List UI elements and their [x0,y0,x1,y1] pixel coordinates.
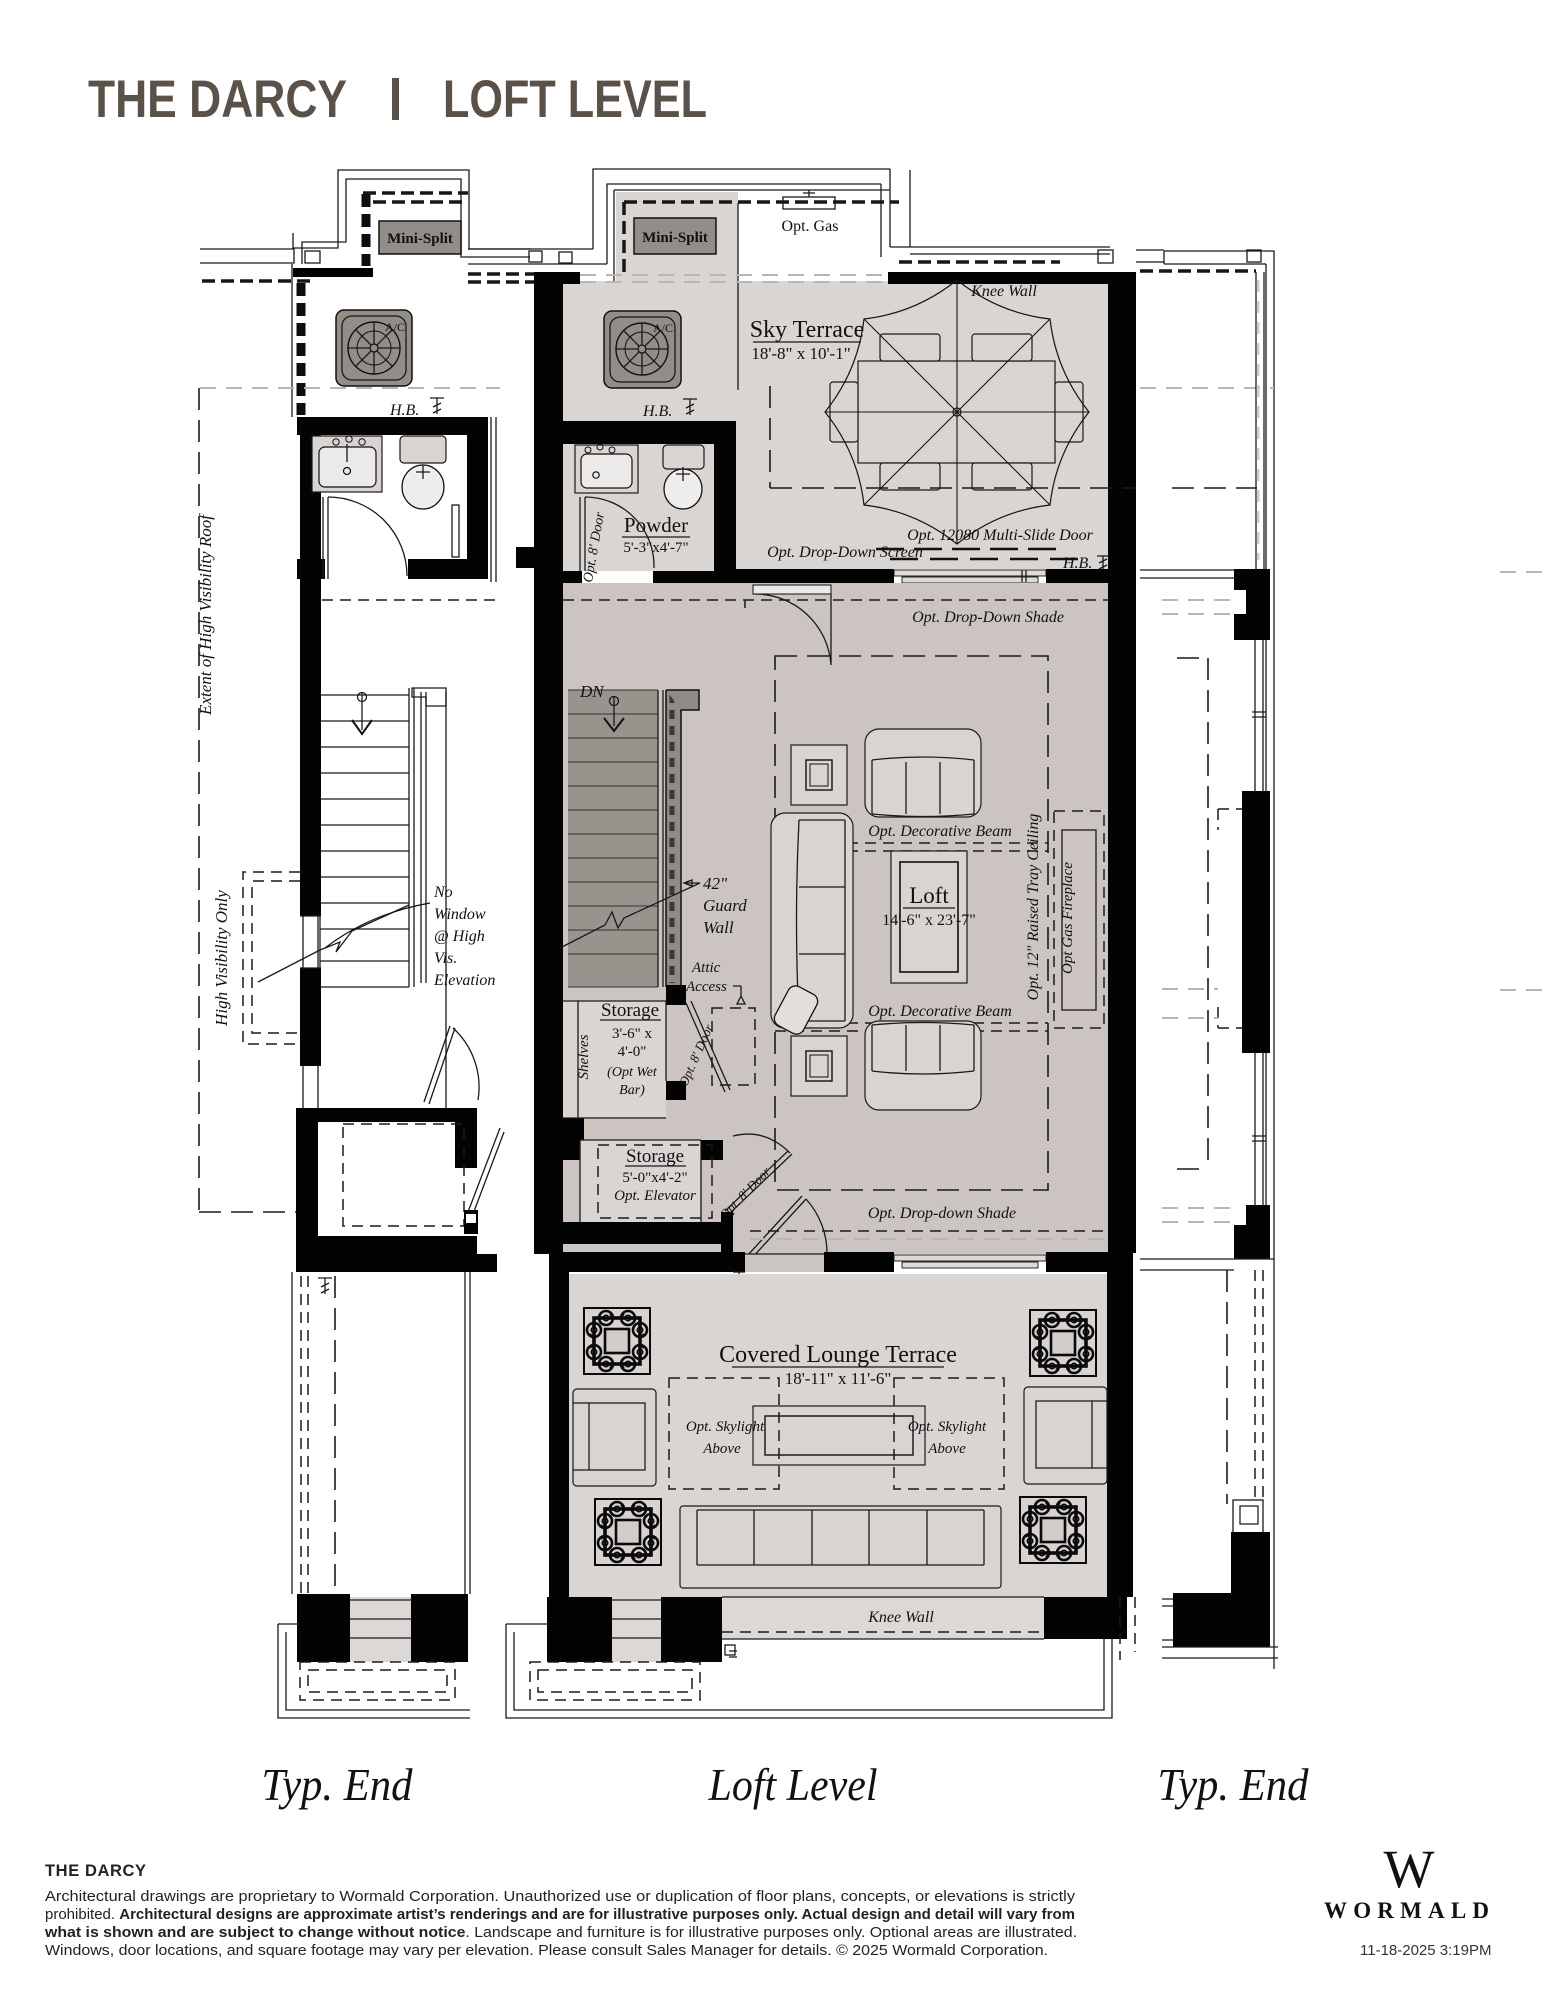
svg-text:4'-0": 4'-0" [618,1044,647,1060]
svg-text:WORMALD: WORMALD [1324,1898,1500,1923]
svg-text:Opt. Decorative Beam: Opt. Decorative Beam [868,823,1012,840]
svg-text:Window: Window [434,906,486,923]
svg-text:Elevation: Elevation [433,972,495,989]
svg-text:3'-6" x: 3'-6" x [612,1026,653,1042]
svg-text:Loft Level: Loft Level [708,1759,878,1810]
svg-text:Opt. Gas: Opt. Gas [782,218,839,235]
svg-text:Opt. Elevator: Opt. Elevator [614,1188,696,1204]
svg-text:Opt. Drop-Down Shade: Opt. Drop-Down Shade [912,609,1064,626]
svg-text:No: No [433,884,453,901]
svg-text:(Opt Wet: (Opt Wet [607,1065,658,1080]
svg-text:11-18-2025 3:19PM: 11-18-2025 3:19PM [1360,1942,1491,1959]
svg-text:High Visibility Only: High Visibility Only [212,890,231,1027]
svg-text:5'-0"x4'-2": 5'-0"x4'-2" [622,1170,687,1186]
svg-text:A/C: A/C [385,320,405,334]
svg-text:Attic: Attic [691,960,721,976]
svg-text:@ High: @ High [434,928,485,945]
svg-text:Powder: Powder [624,513,688,537]
svg-text:Bar): Bar) [619,1083,645,1098]
svg-text:Knee Wall: Knee Wall [867,1609,934,1626]
svg-text:LOFT LEVEL: LOFT LEVEL [443,70,707,129]
svg-text:Opt. Decorative Beam: Opt. Decorative Beam [868,1003,1012,1020]
svg-text:Mini-Split: Mini-Split [642,230,708,246]
svg-text:Typ. End: Typ. End [1158,1759,1310,1810]
svg-text:Above: Above [702,1441,741,1457]
svg-text:Opt. 12" Raised Tray Ceiling: Opt. 12" Raised Tray Ceiling [1025,814,1042,1001]
svg-text:18'-11" x 11'-6": 18'-11" x 11'-6" [785,1369,892,1388]
svg-text:Guard: Guard [703,896,747,915]
svg-text:Windows, door locations, and s: Windows, door locations, and square foot… [45,1943,1048,1959]
svg-text:prohibited. Architectural desi: prohibited. Architectural designs are ap… [45,1907,1075,1923]
svg-text:Shelves: Shelves [576,1034,592,1079]
svg-text:H.B.: H.B. [642,403,672,420]
svg-text:H.B.: H.B. [389,402,419,419]
svg-text:Storage: Storage [626,1146,684,1167]
svg-text:Extent of High Visibility Roof: Extent of High Visibility Roof [196,513,215,716]
svg-text:5'-3"x4'-7": 5'-3"x4'-7" [623,540,688,556]
svg-text:Above: Above [927,1441,966,1457]
svg-text:Storage: Storage [601,1000,659,1021]
svg-text:Sky Terrace: Sky Terrace [750,317,865,343]
svg-text:Mini-Split: Mini-Split [387,231,453,247]
svg-text:Knee Wall: Knee Wall [970,283,1037,300]
svg-text:DN: DN [579,682,605,701]
svg-text:Access: Access [685,979,727,995]
svg-text:Typ. End: Typ. End [262,1759,414,1810]
svg-text:W: W [1384,1839,1435,1899]
svg-text:Loft: Loft [909,883,949,908]
svg-text:42": 42" [703,874,728,893]
svg-text:Architectural drawings are pro: Architectural drawings are proprietary t… [45,1889,1076,1905]
svg-text:Opt Gas Fireplace: Opt Gas Fireplace [1060,862,1076,974]
svg-text:A/C: A/C [653,321,673,335]
svg-text:Opt. Drop-down Shade: Opt. Drop-down Shade [868,1205,1016,1222]
svg-text:Wall: Wall [703,918,734,937]
svg-text:Covered Lounge Terrace: Covered Lounge Terrace [719,1342,957,1368]
svg-text:THE DARCY: THE DARCY [45,1862,147,1880]
svg-text:what is shown and are subject: what is shown and are subject to change … [44,1925,1077,1941]
svg-text:18'-8" x 10'-1": 18'-8" x 10'-1" [751,344,850,363]
svg-text:Opt. 12080 Multi-Slide Door: Opt. 12080 Multi-Slide Door [907,527,1094,544]
svg-text:Opt. Skylight: Opt. Skylight [908,1419,987,1435]
svg-text:Vis.: Vis. [434,950,457,967]
svg-text:14'-6" x 23'-7": 14'-6" x 23'-7" [882,912,975,929]
svg-text:THE DARCY: THE DARCY [88,70,347,129]
svg-text:Opt. Skylight: Opt. Skylight [686,1419,765,1435]
